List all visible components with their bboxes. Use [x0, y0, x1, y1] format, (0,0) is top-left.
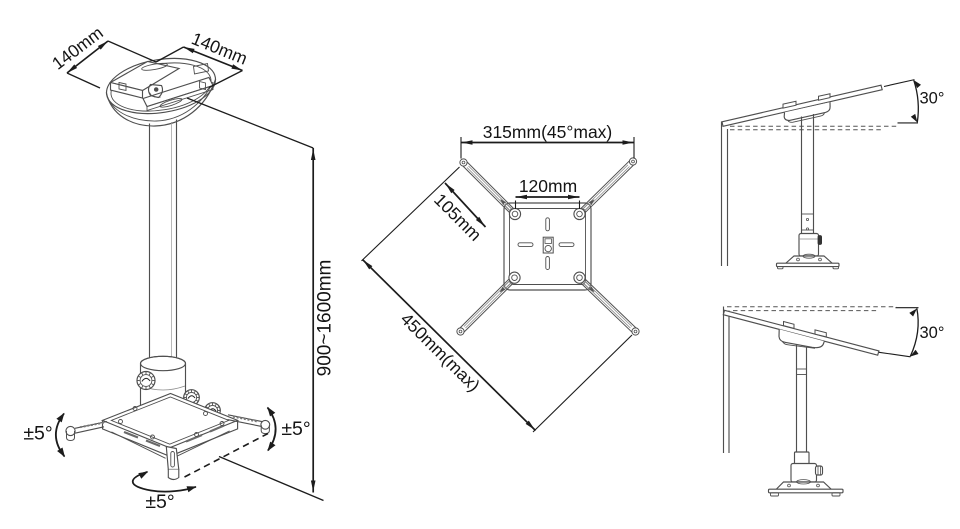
svg-text:±5°: ±5°	[281, 418, 310, 440]
svg-text:±5°: ±5°	[145, 491, 174, 513]
svg-text:315mm(45°max): 315mm(45°max)	[483, 122, 613, 142]
svg-text:30°: 30°	[920, 324, 945, 342]
svg-text:30°: 30°	[920, 89, 945, 107]
svg-text:±5°: ±5°	[23, 423, 52, 445]
svg-text:900~1600mm: 900~1600mm	[315, 260, 336, 377]
svg-text:120mm: 120mm	[519, 176, 577, 196]
